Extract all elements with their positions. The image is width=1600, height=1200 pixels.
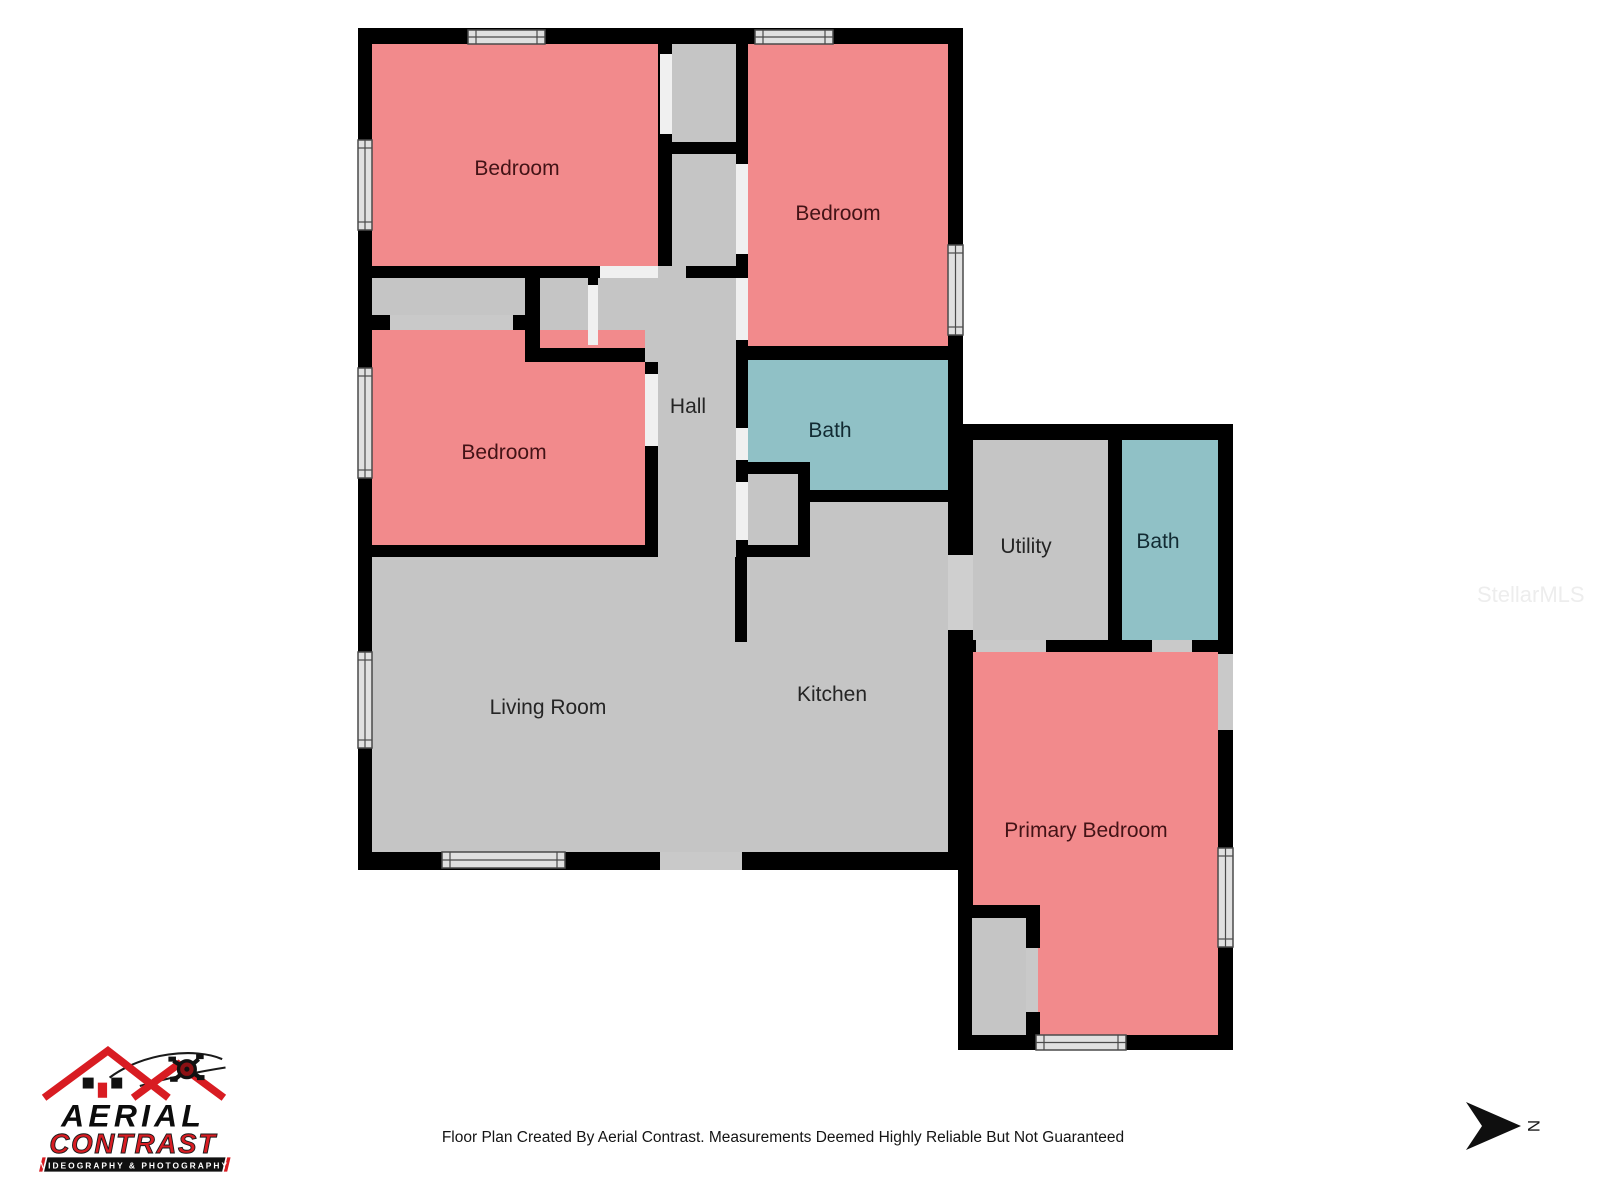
- window-icon: [1218, 848, 1233, 947]
- room-label-utility: Utility: [1000, 535, 1052, 558]
- closet-a: [672, 44, 736, 142]
- wall: [958, 905, 1040, 918]
- window-icon: [755, 30, 833, 44]
- door-opening: [976, 640, 1046, 652]
- roof-window-icon: [111, 1078, 122, 1089]
- entry-door-opening: [660, 852, 742, 870]
- room-label-bedroom-top-right: Bedroom: [795, 202, 880, 225]
- floor-plan-page: Bedroom Bedroom Bedroom Hall Bath Utilit…: [0, 0, 1600, 1200]
- room-label-bedroom-middle: Bedroom: [461, 441, 546, 464]
- door-opening: [645, 374, 658, 446]
- room-label-kitchen: Kitchen: [797, 683, 867, 706]
- room-label-living-room: Living Room: [490, 696, 607, 719]
- room-label-bath-wing: Bath: [1136, 530, 1179, 553]
- window-icon: [358, 652, 372, 748]
- window-icon: [468, 30, 545, 44]
- disclaimer-text: Floor Plan Created By Aerial Contrast. M…: [442, 1129, 1124, 1146]
- room-bedroom-top-right: [748, 44, 948, 346]
- closet-left: [372, 278, 525, 315]
- door-opening: [660, 54, 672, 134]
- wing-door-opening: [1218, 654, 1233, 730]
- window-icon: [358, 140, 372, 230]
- window-icon: [948, 245, 963, 335]
- window-icon: [442, 852, 565, 868]
- door-opening: [736, 482, 748, 540]
- room-label-hall: Hall: [670, 395, 706, 418]
- roof-door-icon: [98, 1083, 107, 1098]
- wall: [525, 348, 645, 362]
- bath-closet: [748, 474, 798, 545]
- wall: [1026, 1012, 1040, 1035]
- stellar-mls-watermark: StellarMLS: [1477, 582, 1585, 607]
- room-bedroom-middle: [372, 330, 645, 545]
- compass-north-label: N: [1524, 1120, 1543, 1132]
- window-icon: [358, 368, 372, 478]
- roof-window-icon: [83, 1078, 94, 1089]
- floor-plan: Bedroom Bedroom Bedroom Hall Bath Utilit…: [358, 28, 1233, 1050]
- closet-left-slider-door: [390, 315, 513, 330]
- door-opening: [736, 428, 748, 460]
- room-label-primary-bedroom: Primary Bedroom: [1004, 819, 1167, 842]
- logo-tagline: VIDEOGRAPHY & PHOTOGRAPHY: [41, 1160, 230, 1170]
- door-opening: [1152, 640, 1192, 652]
- hall-connector: [658, 266, 686, 278]
- wall: [1026, 918, 1040, 948]
- room-label-bath-main: Bath: [808, 419, 851, 442]
- door-opening: [736, 278, 748, 340]
- room-label-bedroom-top-left: Bedroom: [474, 157, 559, 180]
- north-arrow-icon: [1466, 1102, 1521, 1150]
- wall: [798, 462, 810, 557]
- door-opening: [600, 266, 658, 278]
- door-opening: [736, 164, 748, 254]
- floor-plan-canvas: Bedroom Bedroom Bedroom Hall Bath Utilit…: [0, 0, 1600, 1200]
- wall: [735, 557, 747, 642]
- door-opening: [1026, 948, 1038, 1012]
- window-icon: [1036, 1035, 1126, 1050]
- compass: N: [1466, 1102, 1543, 1150]
- kitchen-wing-opening: [948, 555, 973, 630]
- closet-b: [672, 154, 736, 266]
- room-kitchen-upper: [810, 502, 948, 557]
- door-opening: [588, 285, 598, 345]
- aerial-contrast-logo: AERIAL CONTRAST VIDEOGRAPHY & PHOTOGRAPH…: [39, 1051, 231, 1172]
- primary-closet: [972, 918, 1026, 1035]
- wall: [525, 266, 540, 362]
- room-bedroom-top-left: [372, 44, 658, 266]
- logo-brand-line2: CONTRAST: [49, 1128, 217, 1159]
